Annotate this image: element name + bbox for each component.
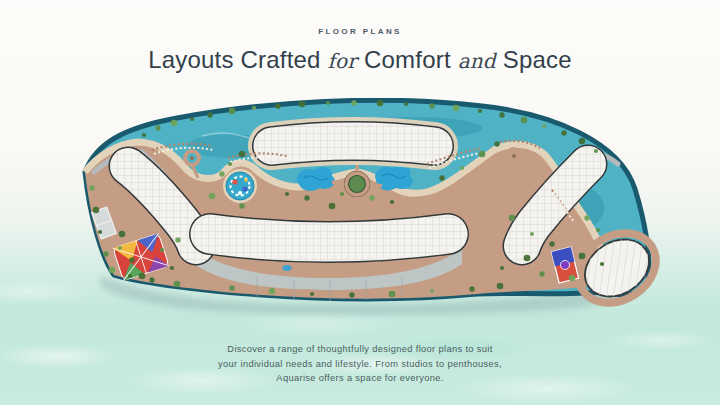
description-line-2: your individual needs and lifestyle. Fro… [0, 357, 720, 372]
title-part-2: Comfort [364, 46, 451, 73]
header-kicker: FLOOR PLANS [0, 27, 720, 36]
float-pool [223, 169, 257, 203]
building-top-center [272, 141, 434, 146]
title-italic-and: and [458, 49, 496, 73]
description-line-3: Aquarise offers a space for everyone. [0, 371, 720, 386]
page-title: Layouts Crafted for Comfort and Space [0, 46, 720, 74]
building-bottom-center [210, 234, 448, 242]
title-italic-for: for [328, 49, 358, 73]
masterplan-image [82, 98, 670, 318]
title-part-3: Space [503, 46, 572, 73]
description-line-1: Discover a range of thoughtfully designe… [0, 342, 720, 357]
page-background: { "header": { "kicker": "FLOOR PLANS", "… [0, 0, 720, 405]
title-part-1: Layouts Crafted [148, 46, 320, 73]
description-text: Discover a range of thoughtfully designe… [0, 342, 720, 386]
wave-pool-left [297, 167, 335, 191]
